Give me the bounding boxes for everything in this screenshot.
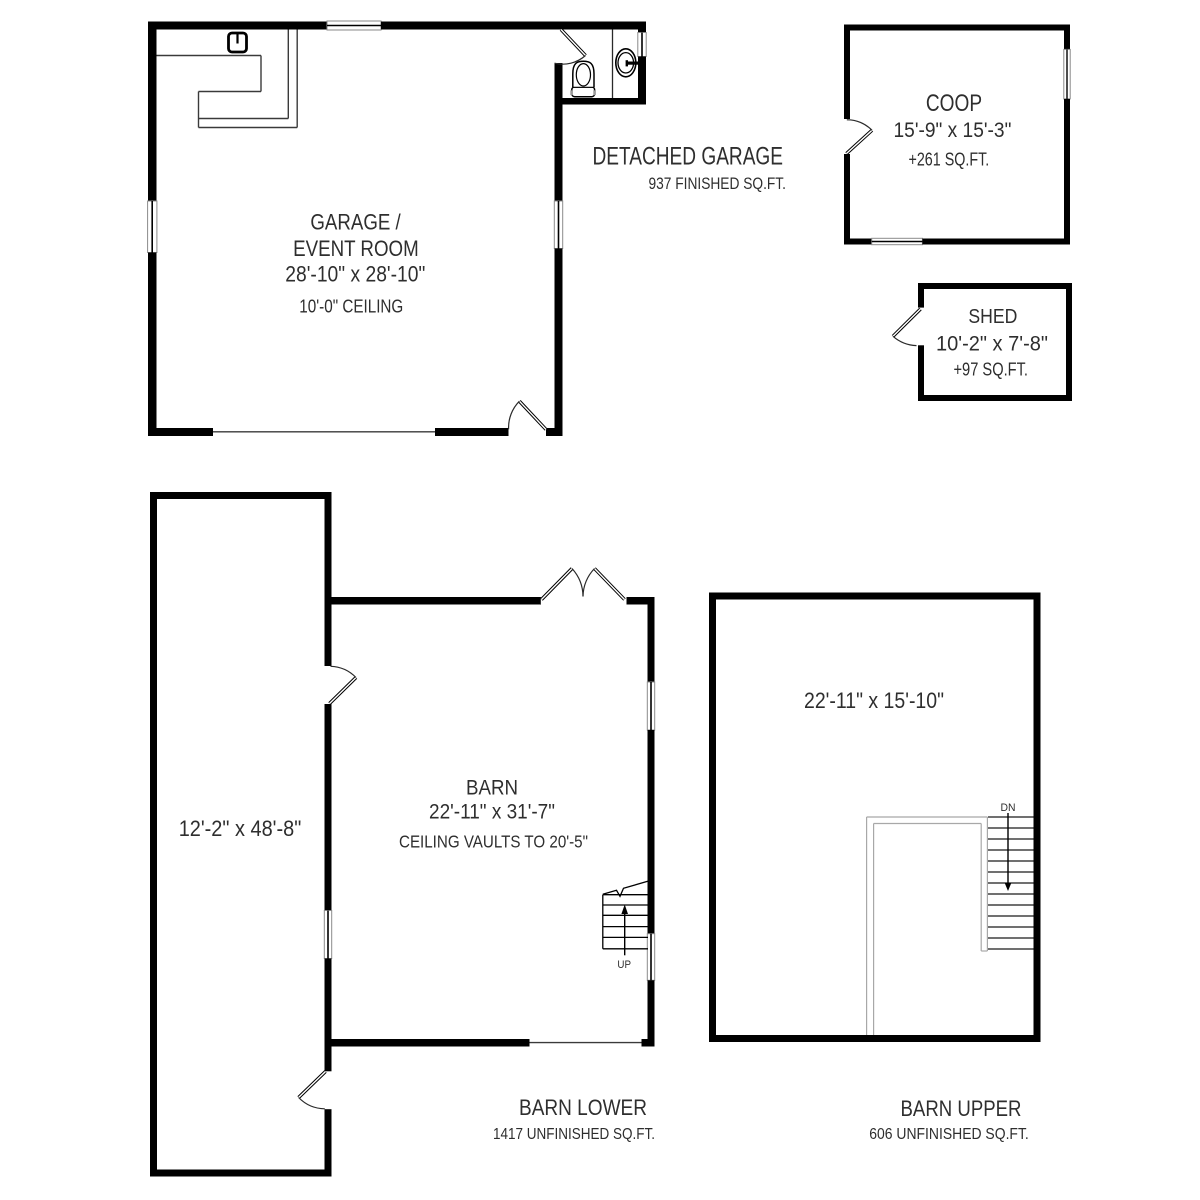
svg-text:CEILING VAULTS TO 20'-5": CEILING VAULTS TO 20'-5" (399, 831, 588, 851)
svg-text:12'-2" x 48'-8": 12'-2" x 48'-8" (179, 816, 302, 841)
svg-text:22'-11" x 31'-7": 22'-11" x 31'-7" (429, 799, 555, 823)
svg-text:BARN LOWER: BARN LOWER (519, 1095, 647, 1120)
svg-text:22'-11" x 15'-10": 22'-11" x 15'-10" (804, 688, 944, 713)
svg-text:10'-0" CEILING: 10'-0" CEILING (299, 296, 403, 317)
svg-text:COOP: COOP (926, 91, 982, 117)
svg-text:606 UNFINISHED SQ.FT.: 606 UNFINISHED SQ.FT. (869, 1126, 1029, 1143)
svg-text:+261 SQ.FT.: +261 SQ.FT. (909, 150, 990, 171)
svg-text:937 FINISHED SQ.FT.: 937 FINISHED SQ.FT. (649, 174, 787, 193)
svg-text:DN: DN (1001, 802, 1016, 814)
svg-text:EVENT ROOM: EVENT ROOM (293, 236, 419, 261)
svg-text:1417 UNFINISHED SQ.FT.: 1417 UNFINISHED SQ.FT. (493, 1126, 655, 1143)
svg-text:+97 SQ.FT.: +97 SQ.FT. (954, 360, 1029, 380)
svg-text:DETACHED GARAGE: DETACHED GARAGE (593, 143, 784, 171)
svg-text:10'-2" x 7'-8": 10'-2" x 7'-8" (936, 332, 1048, 355)
svg-text:15'-9" x 15'-3": 15'-9" x 15'-3" (894, 119, 1012, 142)
svg-text:SHED: SHED (968, 306, 1017, 328)
svg-text:BARN: BARN (466, 775, 518, 799)
svg-text:UP: UP (617, 959, 631, 971)
svg-text:GARAGE /: GARAGE / (310, 210, 401, 235)
svg-text:BARN UPPER: BARN UPPER (901, 1096, 1022, 1121)
svg-text:28'-10" x 28'-10": 28'-10" x 28'-10" (285, 262, 425, 287)
